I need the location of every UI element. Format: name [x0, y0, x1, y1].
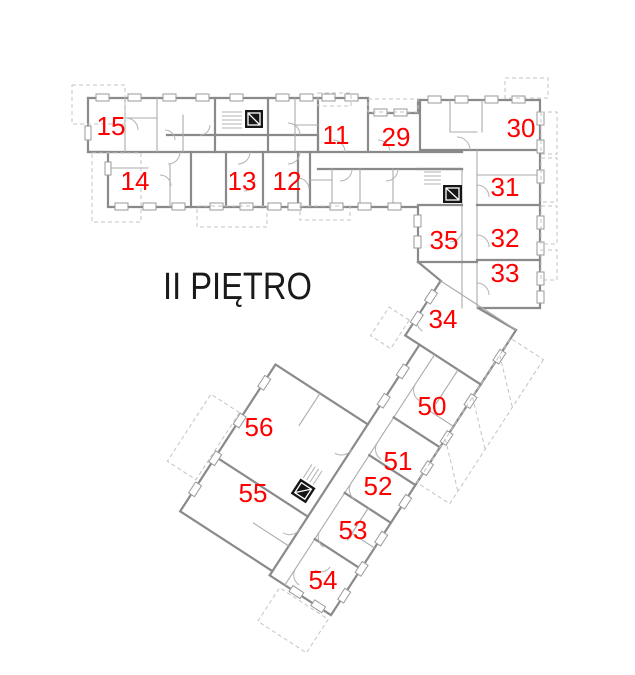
room-label-52: 52 — [364, 473, 393, 499]
floor-plan-page: II PIĘTRO 15 14 13 12 11 29 30 31 32 33 … — [0, 0, 635, 675]
room-label-12: 12 — [273, 168, 302, 194]
room-label-53: 53 — [339, 517, 368, 543]
elevator-shaft — [245, 110, 263, 128]
room-label-13: 13 — [228, 168, 257, 194]
room-label-50: 50 — [418, 393, 447, 419]
room-label-33: 33 — [491, 260, 520, 286]
room-label-32: 32 — [491, 225, 520, 251]
room-label-11: 11 — [323, 122, 350, 148]
room-label-55: 55 — [239, 480, 268, 506]
room-label-15: 15 — [97, 113, 126, 139]
room-label-30: 30 — [507, 115, 536, 141]
room-label-14: 14 — [121, 168, 150, 194]
room-label-54: 54 — [309, 567, 338, 593]
room-label-29: 29 — [382, 124, 411, 150]
floor-title: II PIĘTRO — [163, 268, 312, 306]
top-wing — [85, 94, 544, 330]
room-label-56: 56 — [245, 414, 274, 440]
room-label-35: 35 — [430, 227, 459, 253]
room-label-34: 34 — [429, 306, 458, 332]
room-label-31: 31 — [491, 174, 520, 200]
elevator-shaft — [443, 185, 462, 203]
